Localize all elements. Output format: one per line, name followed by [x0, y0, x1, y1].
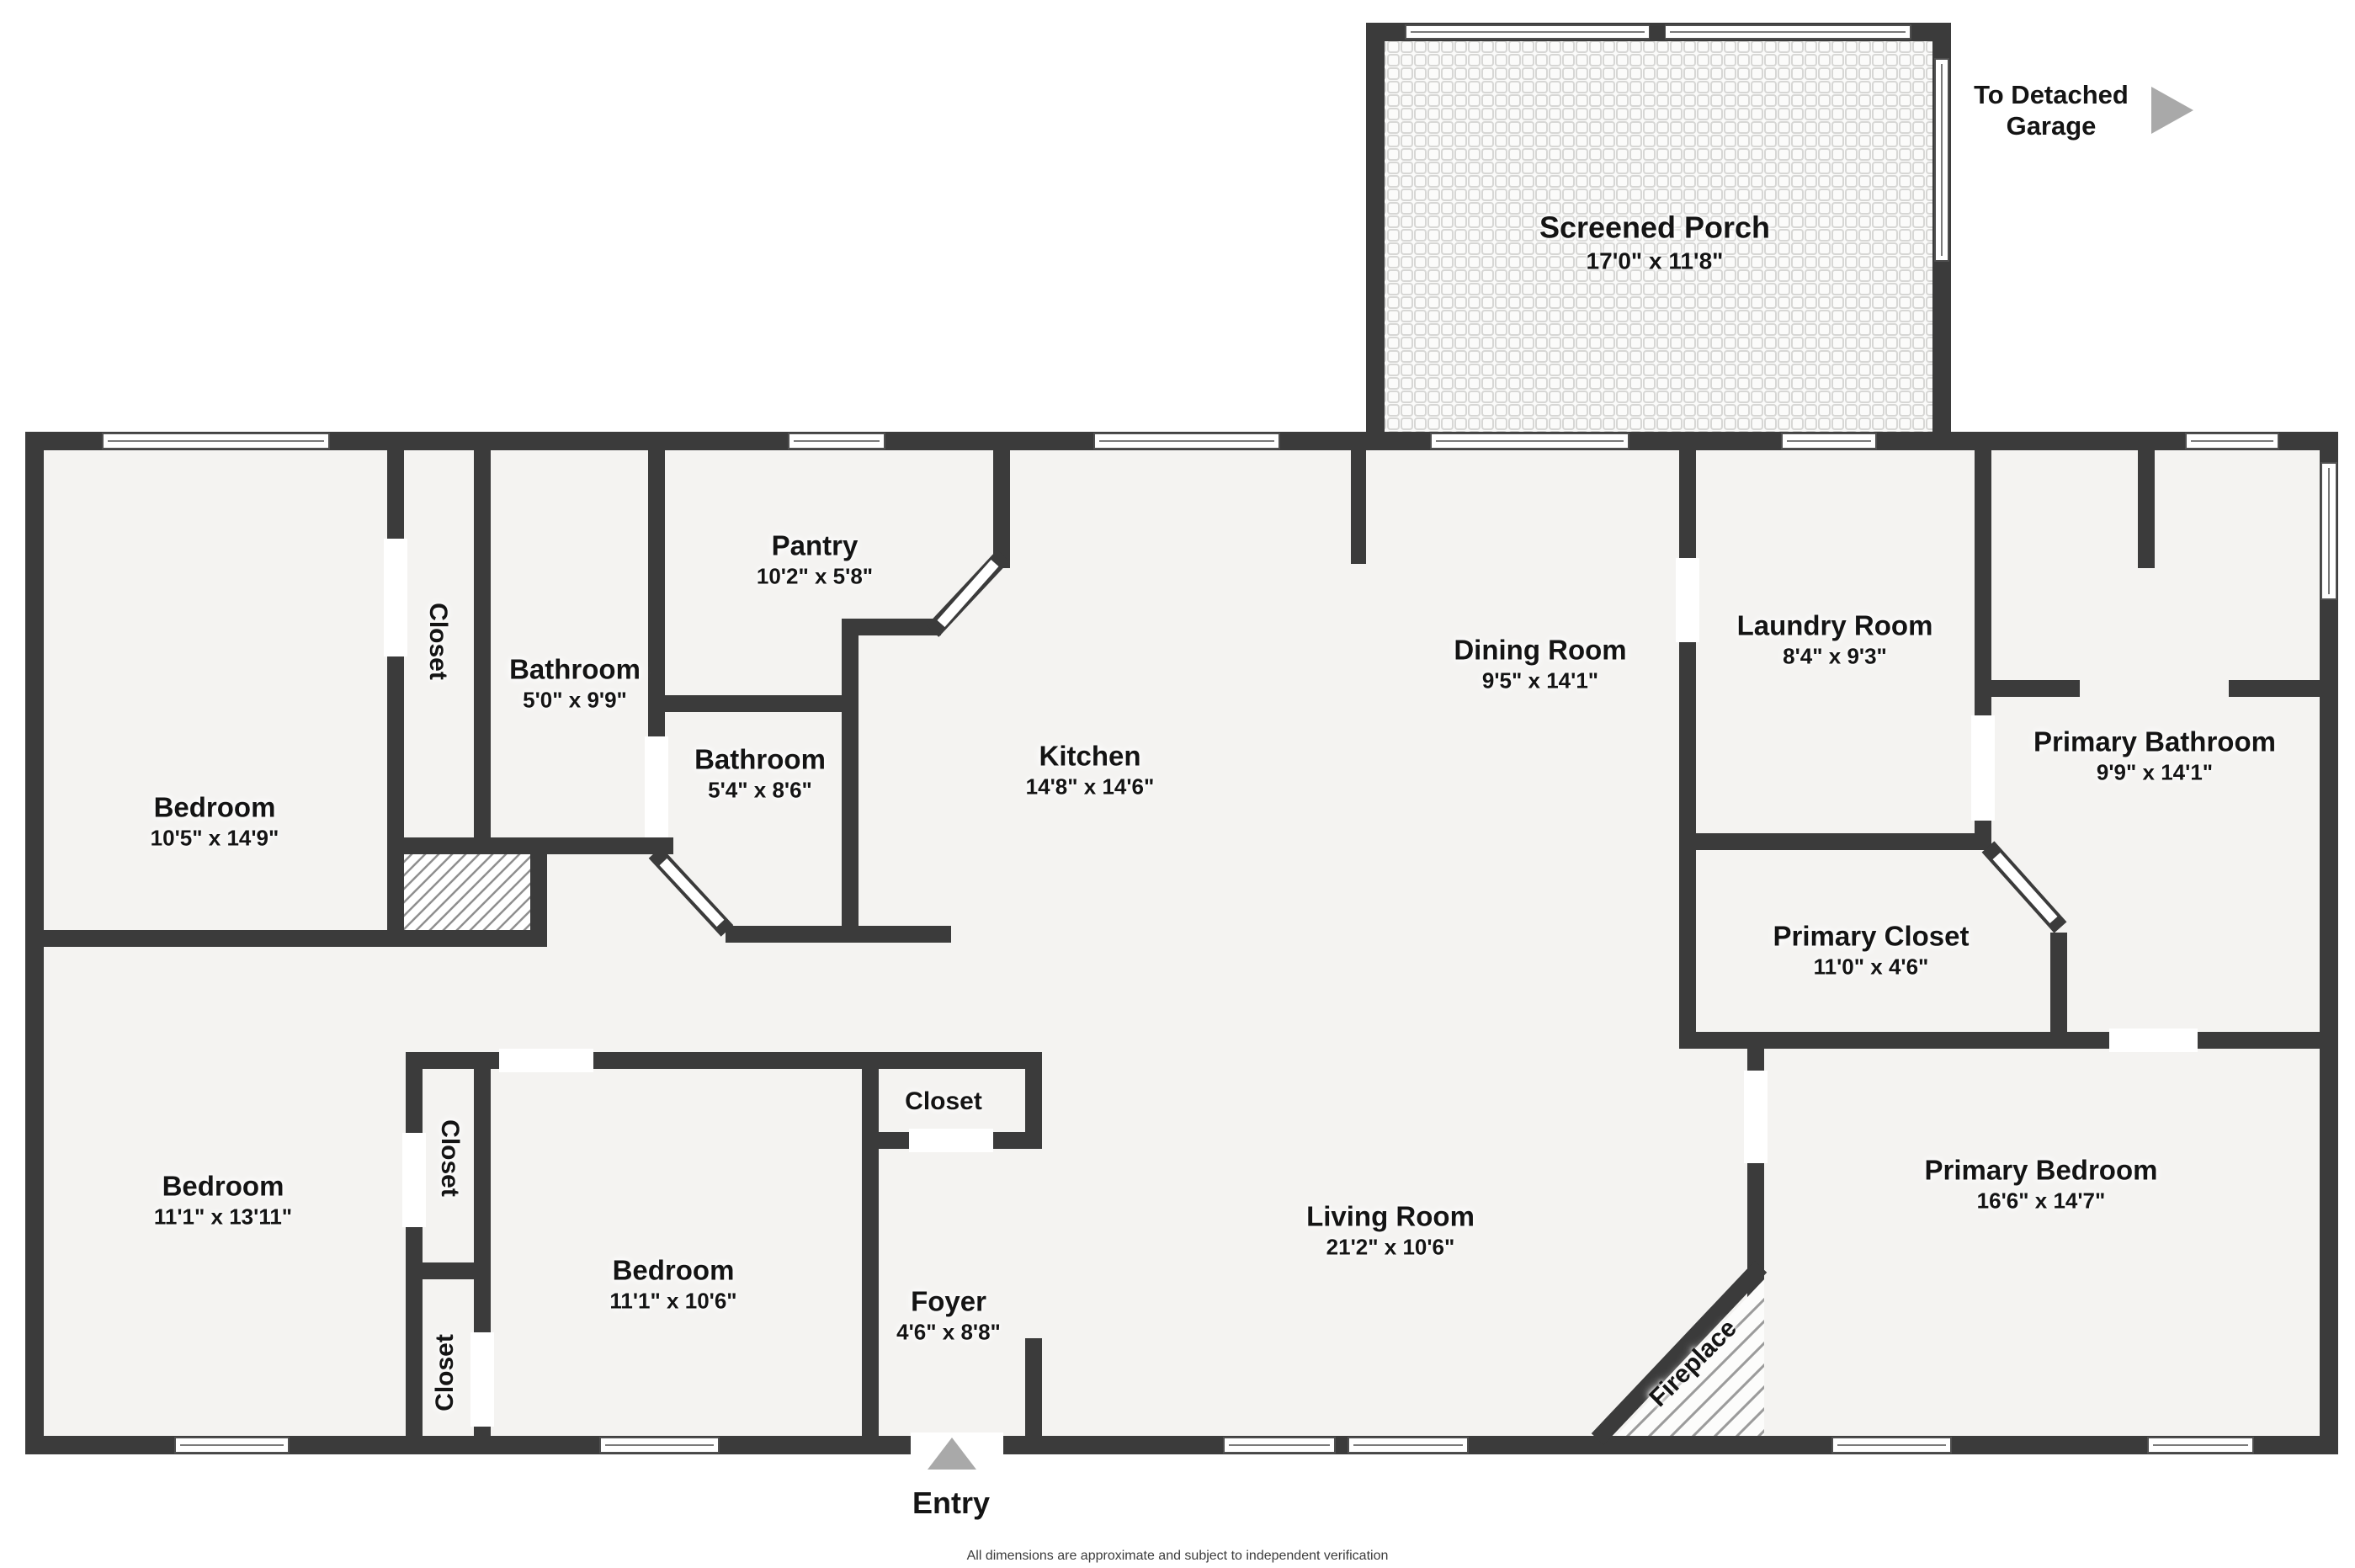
wall	[862, 1069, 879, 1436]
room-label-primary-bedroom: Primary Bedroom 16'6" x 14'7"	[1925, 1152, 2158, 1215]
room-label-closet-column-top: Closet	[435, 1119, 464, 1197]
door-gap	[470, 1332, 494, 1427]
wall	[25, 930, 406, 947]
wall	[406, 1052, 423, 1436]
room-label-living-room: Living Room 21'2" x 10'6"	[1306, 1199, 1475, 1262]
wall	[387, 837, 673, 854]
garage-arrow-icon	[2151, 87, 2193, 134]
floor-plan: Screened Porch 17'0" x 11'8" Bedroom 10'…	[0, 0, 2355, 1568]
wall	[474, 450, 491, 854]
wall	[842, 623, 859, 943]
room-label-bathroom-mid: Bathroom 5'4" x 8'6"	[694, 741, 826, 805]
room-label-bedroom-bottom-mid: Bedroom 11'1" x 10'6"	[609, 1252, 736, 1316]
room-label-primary-bathroom: Primary Bathroom 9'9" x 14'1"	[2033, 724, 2276, 787]
wall	[406, 1262, 491, 1279]
room-label-closet-column-bottom: Closet	[431, 1334, 460, 1411]
room-label-dining-room: Dining Room 9'5" x 14'1"	[1454, 632, 1626, 695]
wall	[842, 619, 941, 635]
wall	[25, 1436, 2338, 1454]
room-label-pantry: Pantry 10'2" x 5'8"	[757, 528, 873, 591]
hatched-area	[404, 854, 530, 930]
wall	[1025, 1338, 1042, 1436]
door-gap	[402, 1133, 426, 1227]
room-label-laundry-room: Laundry Room 8'4" x 9'3"	[1737, 608, 1933, 671]
room-label-bedroom-bottom-left: Bedroom 11'1" x 13'11"	[154, 1168, 292, 1231]
wall	[1975, 680, 2080, 697]
wall	[2229, 680, 2320, 697]
door-gap	[1971, 715, 1995, 821]
room-label-foyer: Foyer 4'6" x 8'8"	[896, 1284, 1001, 1347]
door-gap	[1744, 1071, 1768, 1163]
door-gap	[2109, 1029, 2198, 1052]
door-gap	[1676, 558, 1699, 642]
wall	[1025, 1069, 1042, 1149]
wall	[648, 695, 859, 712]
wall	[1679, 450, 1696, 1046]
room-label-screened-porch: Screened Porch 17'0" x 11'8"	[1539, 208, 1770, 276]
wall	[530, 854, 547, 947]
room-label-primary-closet: Primary Closet 11'0" x 4'6"	[1773, 918, 1970, 981]
wall	[1679, 1032, 2320, 1049]
wall	[2050, 933, 2067, 1040]
room-label-bedroom-top-left: Bedroom 10'5" x 14'9"	[151, 789, 279, 853]
disclaimer-text: All dimensions are approximate and subje…	[967, 1549, 1389, 1564]
door-gap	[499, 1049, 593, 1072]
wall	[1650, 23, 1665, 41]
wall	[1679, 833, 1991, 850]
wall	[387, 930, 547, 947]
garage-note: To Detached Garage	[1946, 79, 2156, 141]
room-label-closet-foyer: Closet	[905, 1087, 982, 1116]
wall	[726, 926, 951, 943]
room-label-closet-top-left: Closet	[423, 603, 452, 680]
floor-plan-canvas	[0, 0, 2355, 1568]
room-label-bathroom-top: Bathroom 5'0" x 9'9"	[509, 651, 641, 715]
wall	[2138, 450, 2155, 568]
wall	[1351, 450, 1366, 564]
wall	[1366, 23, 1385, 432]
entry-label: Entry	[912, 1486, 990, 1521]
room-label-kitchen: Kitchen 14'8" x 14'6"	[1026, 738, 1155, 801]
door-gap	[909, 1129, 993, 1152]
door-gap	[384, 539, 407, 656]
door-gap	[645, 736, 668, 837]
wall	[993, 450, 1010, 568]
